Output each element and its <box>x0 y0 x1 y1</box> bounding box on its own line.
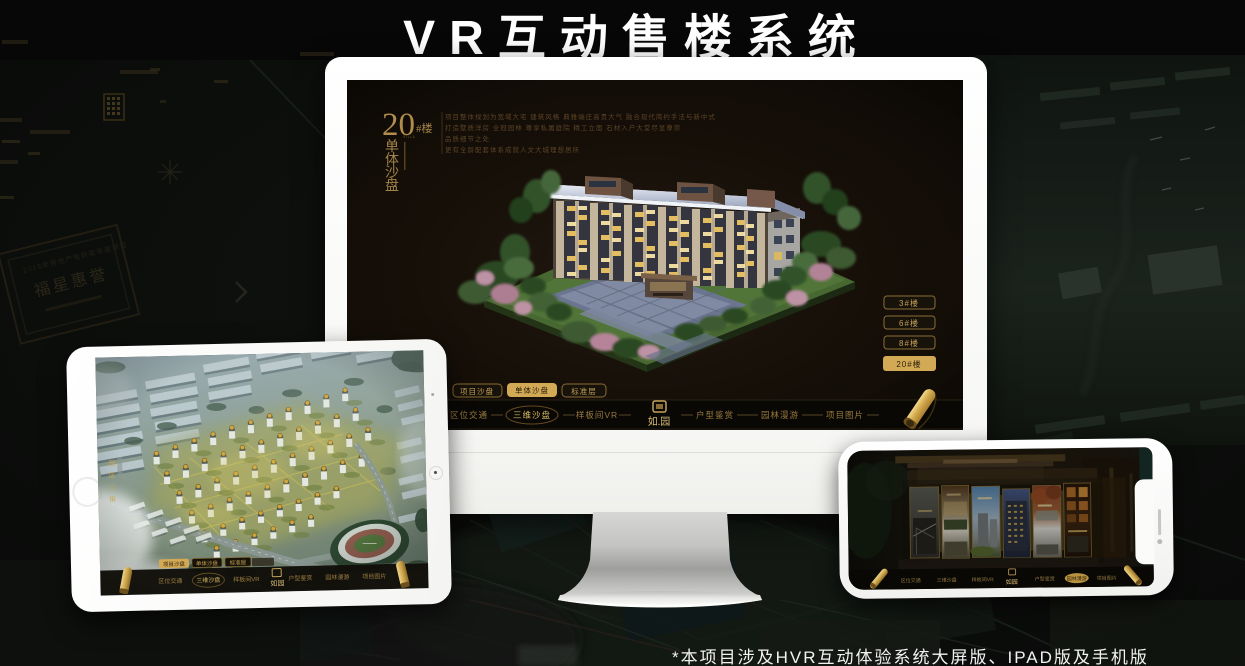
svg-text:街: 街 <box>109 494 116 503</box>
svg-text:项目整体规划为宽域大宅 建筑风格 典雅端庄高贵大气 融合现代: 项目整体规划为宽域大宅 建筑风格 典雅端庄高贵大气 融合现代简约手法与新中式 <box>445 112 716 121</box>
svg-text:#楼: #楼 <box>416 121 433 135</box>
svg-text:项目图片: 项目图片 <box>826 410 864 420</box>
svg-text:户型鉴赏: 户型鉴赏 <box>696 410 734 420</box>
svg-text:园林漫游: 园林漫游 <box>1067 575 1087 582</box>
svg-text:打造墅质洋房 全冠园林 尊享私属庭院 精工立面 石材入户大堂: 打造墅质洋房 全冠园林 尊享私属庭院 精工立面 石材入户大堂尽显尊崇 <box>445 123 681 132</box>
svg-text:园林漫游: 园林漫游 <box>761 410 799 420</box>
svg-text:标准层: 标准层 <box>571 386 597 396</box>
svg-text:三维沙盘: 三维沙盘 <box>937 577 957 584</box>
svg-text:更有全龄配套体系成就人文大城理想居所: 更有全龄配套体系成就人文大城理想居所 <box>445 145 580 154</box>
svg-text:单体沙盘: 单体沙盘 <box>515 385 549 395</box>
svg-text:如园: 如园 <box>270 578 284 587</box>
svg-text:项目沙盘: 项目沙盘 <box>460 386 494 396</box>
svg-text:户型鉴赏: 户型鉴赏 <box>1035 575 1055 582</box>
svg-text:如园: 如园 <box>1006 578 1018 586</box>
svg-text:样板间VR: 样板间VR <box>972 576 994 583</box>
svg-text:6#楼: 6#楼 <box>899 318 919 328</box>
svg-text:8#楼: 8#楼 <box>899 338 919 348</box>
svg-text:如.园: 如.园 <box>648 415 671 428</box>
svg-text:项目图片: 项目图片 <box>1097 575 1117 582</box>
svg-text:样板间VR: 样板间VR <box>576 410 618 420</box>
svg-text:V I L L A: V I L L A <box>403 135 416 139</box>
svg-text:区位交通: 区位交通 <box>901 577 921 584</box>
svg-text:品质细节之处: 品质细节之处 <box>445 134 490 143</box>
svg-text:三: 三 <box>109 483 116 491</box>
svg-text:园: 园 <box>109 459 116 467</box>
svg-text:区: 区 <box>109 471 116 479</box>
svg-text:区位交通: 区位交通 <box>450 410 488 420</box>
svg-text:20#楼: 20#楼 <box>896 359 921 369</box>
svg-text:3#楼: 3#楼 <box>899 298 919 308</box>
svg-text:盘: 盘 <box>385 177 399 194</box>
svg-text:三维沙盘: 三维沙盘 <box>513 410 551 420</box>
